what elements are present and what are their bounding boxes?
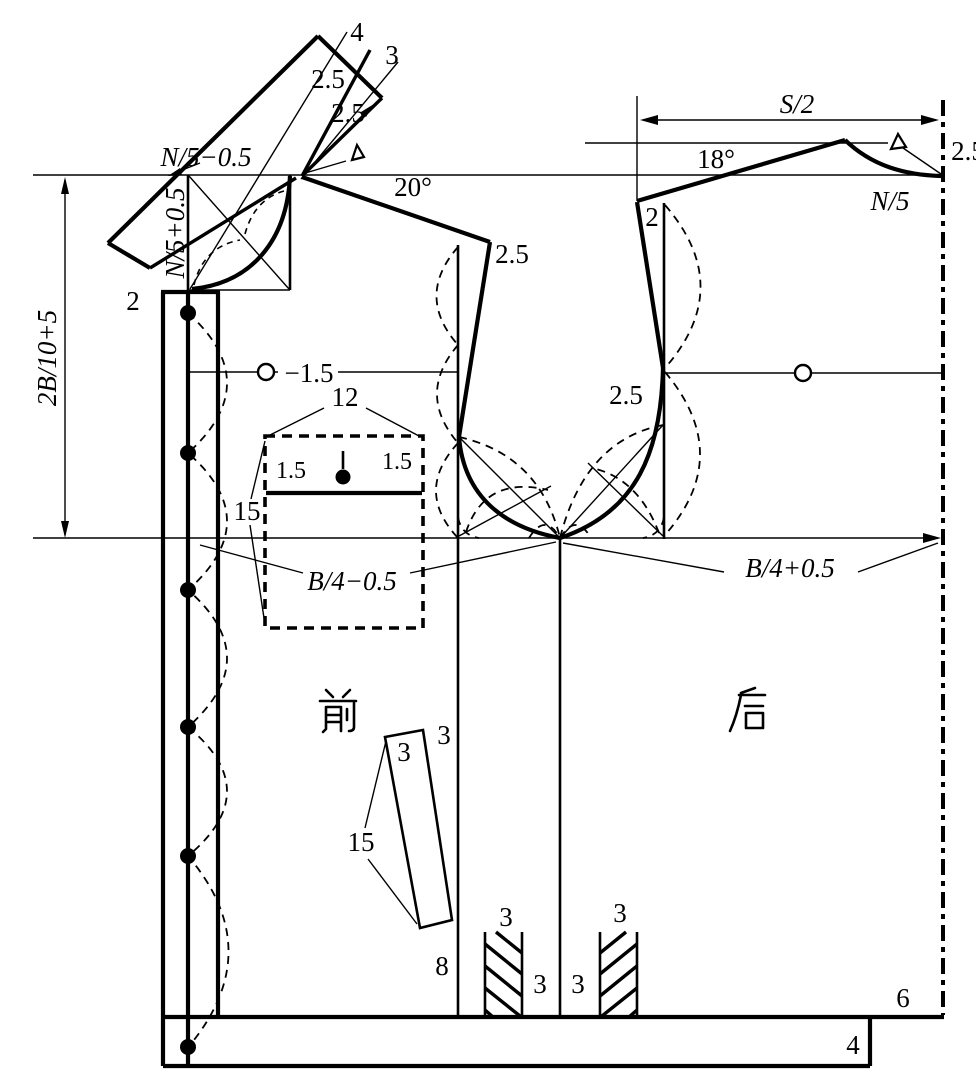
arrow-left (640, 115, 658, 125)
strip-width-inner-label: 3 (397, 737, 411, 767)
back-neck-label: N/5 (869, 186, 909, 216)
front-armhole-upper (459, 242, 490, 437)
neck-width-label: N/5−0.5 (160, 142, 252, 172)
svg-text:前: 前 (321, 688, 355, 726)
placket-strip: 3 3 15 (348, 720, 453, 928)
front-shoulder-drop-label: 2.5 (495, 239, 529, 269)
hem-band-label: 4 (846, 1030, 860, 1060)
back-shoulder-angle-label: 18° (697, 144, 735, 174)
pocket-depth-label: 15 (234, 496, 261, 526)
back-dart-label: 2 (645, 202, 659, 232)
back-chest-circle-icon (795, 365, 811, 381)
armhole-depth-dimension: 2B/10+5 (32, 177, 69, 538)
front-notch-triangle-icon (352, 145, 364, 160)
strip-length-label: 15 (348, 827, 375, 857)
pleat-left-offset-label: 3 (533, 969, 547, 999)
front-piece-name: 前 (320, 688, 356, 732)
placket-scallop-curve (188, 313, 229, 1045)
button-2 (180, 445, 196, 461)
front-armhole-cross (459, 486, 551, 536)
collar-tip-label: 4 (350, 17, 364, 47)
back-shoulder-armhole: 18° N/5 2.5 2 2.5 (560, 134, 976, 539)
pocket-flap-right-label: 1.5 (382, 449, 412, 475)
arrow-up (61, 177, 69, 194)
pocket-width-label: 12 (332, 382, 359, 412)
armhole-depth-label: 2B/10+5 (32, 310, 62, 406)
strip-outline (385, 730, 452, 928)
collar-rise-upper-label: 2.5 (311, 64, 345, 94)
chest-line-arrow (923, 533, 941, 543)
chest-line-offset-label: −1.5 (285, 358, 334, 388)
collar-rise-lower-label: 2.5 (331, 98, 365, 128)
pleat-right-width-label: 3 (613, 898, 627, 928)
back-armhole-cross (588, 463, 663, 536)
back-chest-label: B/4+0.5 (745, 553, 834, 583)
neck-depth-label: N/5+0.5 (160, 188, 190, 280)
button-5 (180, 848, 196, 864)
front-hem-panel-label: 8 (435, 951, 449, 981)
arrow-right (921, 115, 939, 125)
right-pleat (600, 932, 637, 1017)
front-body (161, 175, 944, 1066)
button-1 (180, 305, 196, 321)
svg-text:后: 后 (731, 689, 765, 726)
hem-pleats: 3 3 3 3 8 (435, 898, 637, 1017)
arrow-down (61, 521, 69, 538)
back-width-label: S/2 (780, 89, 815, 119)
back-armhole-in-label: 2.5 (609, 380, 643, 410)
back-notch-leader (903, 148, 941, 174)
hem-labels: 6 4 (846, 983, 910, 1060)
front-overlap-label: 2 (126, 286, 140, 316)
back-piece-name: 后 (730, 688, 765, 731)
button-4 (180, 719, 196, 735)
pleat-left-width-label: 3 (499, 902, 513, 932)
pocket-flap-left-label: 1.5 (276, 458, 306, 484)
back-notch-triangle-icon (891, 134, 906, 149)
pattern-draft-canvas: 2B/10+5 S/2 4 3 2.5 (0, 0, 976, 1090)
collar-point-edge (108, 243, 150, 268)
front-chest-label: B/4−0.5 (307, 566, 396, 596)
back-neck-rise-label: 2.5 (951, 136, 976, 166)
collar-band-label: 3 (385, 40, 399, 70)
left-pleat (485, 932, 522, 1017)
front-chest-circle-icon (258, 364, 274, 380)
front-shoulder-angle-label: 20° (394, 172, 432, 202)
button-3 (180, 582, 196, 598)
back-shoulder-line (637, 140, 845, 201)
button-6 (180, 1039, 196, 1055)
pleat-right-offset-label: 3 (571, 969, 585, 999)
pocket-button (336, 470, 351, 485)
strip-width-outer-label: 3 (437, 720, 451, 750)
back-vent-label: 6 (896, 983, 910, 1013)
